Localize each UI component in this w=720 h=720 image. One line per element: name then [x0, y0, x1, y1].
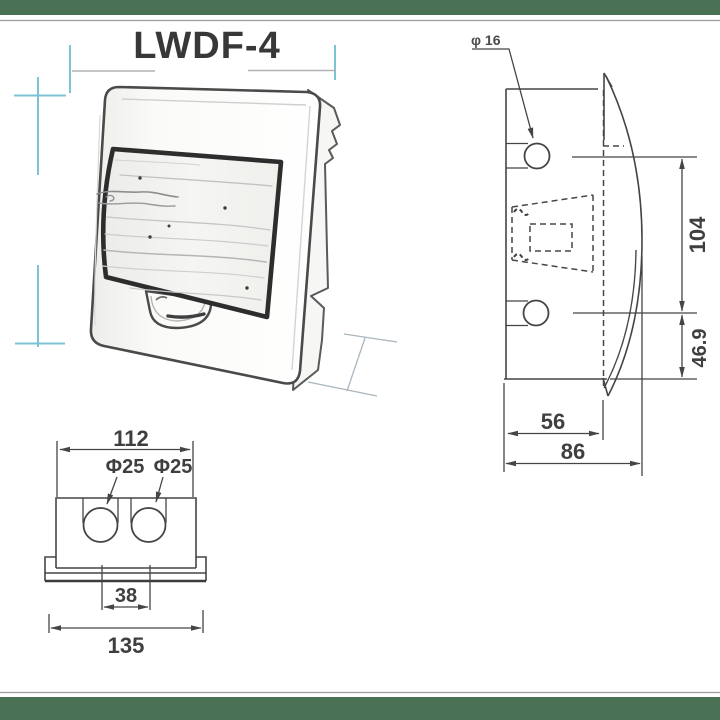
- side-view: φ 16 104 46.9 56 86: [471, 32, 711, 476]
- sketch-line-lower: [308, 382, 377, 396]
- sv-terminal-thread-bottom: [514, 254, 530, 260]
- sv-terminal-dashed: [512, 195, 593, 272]
- dim-lower-offset: 46.9: [610, 315, 711, 379]
- sv-terminal-outline: [512, 195, 593, 272]
- bv-knockout-hole-right: [132, 508, 166, 542]
- dim-knockout-spacing: 38: [104, 585, 148, 607]
- bottom-accent-bar: [0, 697, 720, 720]
- gray-guide-lines: [72, 71, 336, 72]
- sketch-line-connector: [347, 338, 365, 391]
- dim-recess-depth: 56: [504, 383, 603, 472]
- dim112-value: 112: [113, 426, 149, 451]
- bottom-plan-view: 112 Φ25 Φ25 38 135: [45, 426, 206, 658]
- dim104-value: 104: [685, 216, 710, 253]
- dim56-value: 56: [541, 409, 565, 434]
- dim469-value: 46.9: [689, 329, 711, 368]
- knockout-left-label: Φ25: [106, 456, 145, 478]
- knockout-dia-label: φ 16: [471, 32, 501, 48]
- dim86-value: 86: [561, 439, 585, 464]
- bv-flange-plate: [45, 557, 206, 581]
- door-dot: [148, 235, 151, 238]
- door-dot: [245, 286, 248, 289]
- sv-door-outer-curve: [606, 76, 642, 396]
- knockout-dia-leader: [472, 49, 533, 138]
- model-title: LWDF-4: [133, 25, 280, 67]
- door-dot: [168, 225, 171, 228]
- sv-knockout-hole-bottom: [524, 301, 549, 326]
- sv-terminal-inner: [530, 224, 572, 251]
- door-dot: [223, 206, 226, 209]
- knockout-left-leader: [107, 477, 117, 504]
- dim135-value: 135: [108, 633, 145, 658]
- door-dot: [138, 176, 141, 179]
- dim-flange-width: 135: [49, 610, 203, 658]
- sketch-line-upper: [344, 334, 397, 342]
- bv-knockout-hole-left: [84, 508, 118, 542]
- knockout-right-label: Φ25: [154, 456, 193, 478]
- top-accent-bar: [0, 0, 720, 15]
- dim38-value: 38: [115, 585, 137, 607]
- technical-drawing-canvas: LWDF-4: [0, 0, 720, 720]
- bv-flange-tabs: [45, 557, 206, 581]
- bv-body-outline: [56, 498, 196, 568]
- perspective-view: [91, 87, 397, 396]
- sv-knockout-hole-top: [525, 144, 550, 169]
- sv-terminal-thread-top: [514, 209, 530, 215]
